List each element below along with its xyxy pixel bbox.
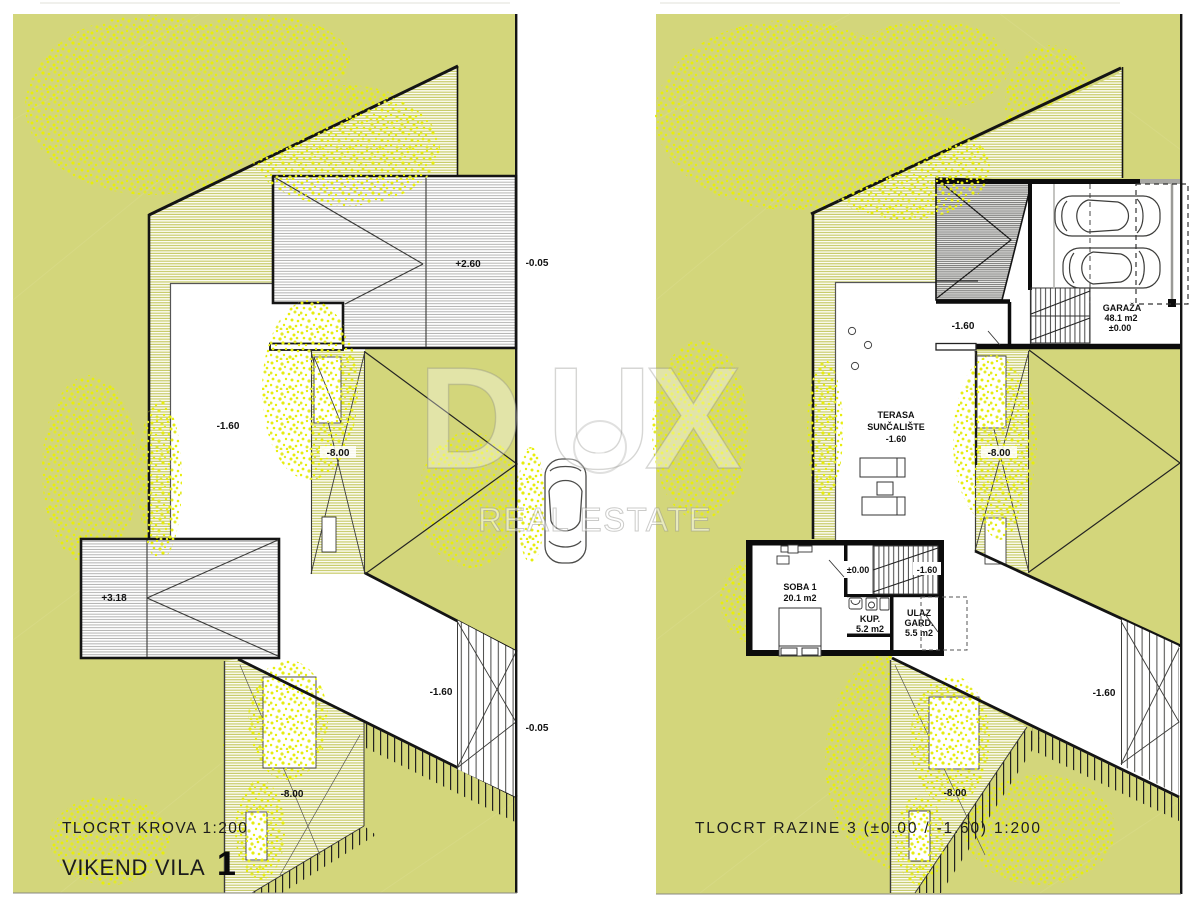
svg-text:-1.60: -1.60 — [952, 321, 975, 332]
svg-text:48.1 m2: 48.1 m2 — [1104, 313, 1137, 323]
svg-text:X: X — [645, 337, 742, 499]
svg-text:1: 1 — [217, 845, 236, 883]
svg-text:VIKEND VILA: VIKEND VILA — [62, 855, 205, 880]
svg-text:+3.18: +3.18 — [101, 593, 127, 604]
svg-text:-0.05: -0.05 — [526, 723, 549, 734]
svg-text:ULAZ: ULAZ — [907, 608, 931, 618]
svg-text:+2.60: +2.60 — [455, 259, 481, 270]
svg-text:-1.60: -1.60 — [917, 565, 938, 575]
svg-text:5.5 m2: 5.5 m2 — [905, 628, 933, 638]
svg-text:TLOCRT RAZINE 3 (±0.00 / -1.60: TLOCRT RAZINE 3 (±0.00 / -1.60) 1:200 — [695, 820, 1042, 837]
svg-text:-8.00: -8.00 — [988, 448, 1011, 459]
svg-text:SUNČALIŠTE: SUNČALIŠTE — [867, 421, 925, 432]
svg-text:20.1 m2: 20.1 m2 — [783, 593, 816, 603]
svg-text:-0.05: -0.05 — [526, 258, 549, 269]
svg-text:-1.60: -1.60 — [217, 421, 240, 432]
svg-text:TLOCRT KROVA 1:200: TLOCRT KROVA 1:200 — [62, 820, 248, 837]
svg-text:-8.00: -8.00 — [281, 789, 304, 800]
svg-text:GARAŽA: GARAŽA — [1103, 302, 1142, 313]
svg-text:REAL ESTATE: REAL ESTATE — [478, 501, 712, 538]
svg-text:±0.00: ±0.00 — [847, 565, 869, 575]
svg-text:TERASA: TERASA — [877, 410, 915, 420]
svg-text:-1.60: -1.60 — [886, 434, 907, 444]
svg-text:±0.00: ±0.00 — [1109, 323, 1131, 333]
svg-text:-8.00: -8.00 — [944, 788, 967, 799]
svg-text:DU: DU — [418, 337, 675, 499]
svg-text:-1.60: -1.60 — [1093, 688, 1116, 699]
svg-text:KUP.: KUP. — [860, 614, 880, 624]
svg-text:-8.00: -8.00 — [327, 448, 350, 459]
svg-text:5.2 m2: 5.2 m2 — [856, 624, 884, 634]
svg-text:-1.60: -1.60 — [430, 687, 453, 698]
svg-text:SOBA 1: SOBA 1 — [783, 582, 816, 592]
